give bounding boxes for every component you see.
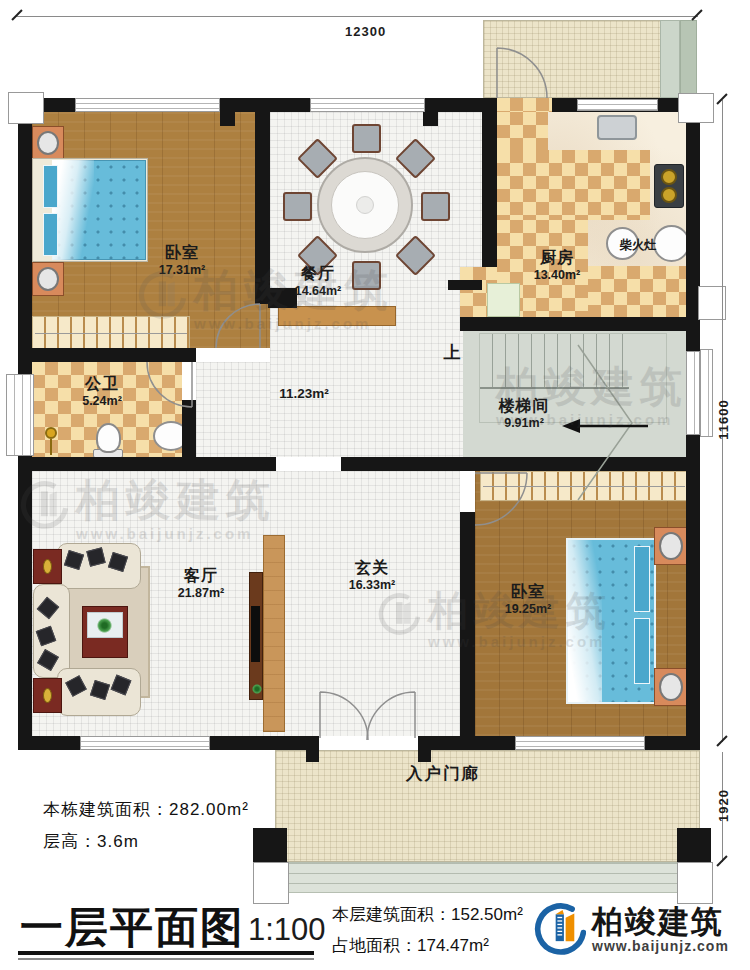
porch-pillar-base xyxy=(253,862,289,904)
entry-porch-floor xyxy=(275,750,700,862)
title-underline xyxy=(18,951,314,955)
entry-steps xyxy=(287,862,700,893)
kitchen-floor xyxy=(497,98,552,112)
tv xyxy=(251,606,260,662)
bed-pillow xyxy=(634,618,650,684)
plant xyxy=(252,684,262,694)
wall-segment xyxy=(268,288,297,308)
wall-segment xyxy=(182,400,196,457)
end-table xyxy=(33,678,62,713)
wardrobe xyxy=(32,316,190,350)
kitchen-floor xyxy=(497,112,548,150)
window xyxy=(686,351,700,435)
wall-segment xyxy=(460,512,475,736)
window xyxy=(6,374,34,456)
toilet xyxy=(96,423,121,453)
window xyxy=(75,98,220,112)
sideboard xyxy=(278,306,396,326)
window-sill xyxy=(700,349,713,437)
shower-head xyxy=(45,427,57,439)
kitchen-sink xyxy=(597,115,637,140)
nightstand xyxy=(32,262,64,296)
door-jamb xyxy=(418,736,431,762)
window xyxy=(577,99,658,111)
bed-sheet xyxy=(568,540,602,702)
pier-box xyxy=(8,92,44,124)
note-building-area: 本栋建筑面积：282.00m² xyxy=(43,798,249,821)
room-label-bedroom1: 卧室17.31m² xyxy=(159,243,206,278)
room-label-hallway: 11.23m² xyxy=(279,386,329,402)
wall-segment xyxy=(460,317,686,331)
room-label-stairwell: 楼梯间9.91m² xyxy=(499,396,550,431)
gas-stove xyxy=(654,164,684,208)
wall-pier xyxy=(423,98,438,126)
tv-feature-wall xyxy=(263,535,285,732)
dimension-label-right-lower: 1920 xyxy=(716,776,731,836)
door-jamb xyxy=(306,736,319,762)
plant xyxy=(97,618,112,633)
dining-chair xyxy=(283,192,312,221)
wall-segment xyxy=(18,348,196,362)
window xyxy=(310,98,425,112)
plan-title: 一层平面图 xyxy=(20,899,245,957)
brand-name: 柏竣建筑 xyxy=(592,901,724,943)
room-label-bedroom2: 卧室19.25m² xyxy=(505,582,552,617)
note-floor-area: 本层建筑面积：152.50m² xyxy=(332,903,523,926)
porch-pillar xyxy=(677,828,711,862)
room-label-living: 客厅21.87m² xyxy=(178,566,225,601)
pier-box xyxy=(678,93,714,123)
wall-segment xyxy=(341,457,686,471)
note-land-area: 占地面积：174.47m² xyxy=(332,934,489,957)
bed-sheet xyxy=(52,160,94,260)
porch-pillar-base xyxy=(677,862,713,904)
note-floor-height: 层高：3.6m xyxy=(43,830,139,853)
terrace-step xyxy=(660,20,680,98)
bed-pillow xyxy=(43,213,58,256)
end-table xyxy=(33,549,62,584)
room-label-kitchen: 厨房13.40m² xyxy=(534,248,581,283)
dimension-label-right-upper: 11600 xyxy=(716,390,731,450)
hallway-floor xyxy=(196,362,270,457)
wall-pier xyxy=(220,98,235,126)
window xyxy=(80,736,210,750)
dimension-tick xyxy=(11,9,22,20)
plan-scale: 1:100 xyxy=(248,912,326,948)
nightstand xyxy=(654,527,688,565)
brand-logo-icon xyxy=(534,900,586,958)
kitchen-floor xyxy=(497,150,650,220)
kitchen-floor xyxy=(588,266,686,320)
nightstand xyxy=(32,126,64,160)
porch-pillar xyxy=(253,828,287,862)
room-label-wood-stove: 柴火灶 xyxy=(619,238,657,253)
shower-stem xyxy=(50,439,52,455)
floor-plan-canvas: 卧室17.31m² 餐厅14.64m² 厨房13.40m² 柴火灶 公卫5.24… xyxy=(0,0,750,970)
dimension-tick xyxy=(691,9,702,20)
room-label-bathroom: 公卫5.24m² xyxy=(82,374,122,409)
dining-chair xyxy=(352,261,381,290)
wall-segment xyxy=(482,112,497,267)
entry-opening xyxy=(319,736,418,750)
nightstand xyxy=(654,668,688,706)
wall-segment xyxy=(448,280,482,290)
kitchen-cabinet xyxy=(487,283,520,317)
room-label-porch: 入户门廊 xyxy=(406,763,480,783)
bed-pillow xyxy=(634,546,650,612)
dining-table-hub xyxy=(356,196,374,214)
window xyxy=(515,736,645,750)
wood-stove-pot xyxy=(653,225,690,262)
dining-chair xyxy=(352,124,381,153)
room-label-foyer: 玄关16.33m² xyxy=(349,558,396,593)
wall-segment xyxy=(18,457,276,471)
brand-url: www.baijunjz.com xyxy=(592,938,729,954)
terrace-step xyxy=(680,20,697,98)
stair-up-label: 上 xyxy=(444,343,461,364)
title-underline xyxy=(18,958,314,960)
dimension-label-top: 12300 xyxy=(345,24,386,39)
dining-chair xyxy=(421,192,450,221)
dimension-line-top xyxy=(15,16,698,17)
bed-pillow xyxy=(43,165,58,208)
room-label-dining: 餐厅14.64m² xyxy=(295,264,342,299)
wall-segment xyxy=(255,112,270,304)
wardrobe xyxy=(480,471,688,501)
